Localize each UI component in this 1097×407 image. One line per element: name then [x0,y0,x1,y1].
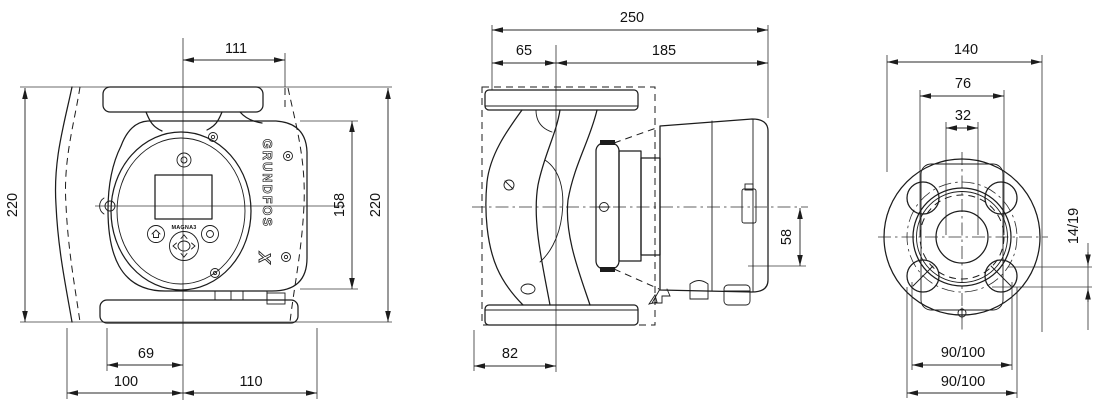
dpad-down-icon [181,254,187,258]
dim-69-label: 69 [138,346,154,362]
side-dimensions: 250 65 185 58 82 [474,10,800,366]
pump-bounding-outline [482,87,655,325]
side-bottom-flange [485,305,638,325]
dim-76-label: 76 [955,76,971,92]
ok-button [178,241,190,251]
dpad-ring [170,232,199,261]
dim-110-label: 110 [239,374,262,390]
front-dimensions: 111 220 158 220 69 100 110 [5,41,388,393]
side-top-flange [485,90,638,110]
bolt-hole [985,182,1017,214]
cable-gland-2 [690,281,708,300]
display-screen [155,175,212,219]
side-extension-lines [472,25,808,372]
dim-82-label: 82 [502,346,518,362]
model-label: MAGNA3 [171,225,196,231]
grundfos-x-logo: X [255,251,274,265]
dim-140-label: 140 [954,42,978,58]
dim-220-left-label: 220 [5,193,21,217]
dim-111-label: 111 [225,41,247,57]
side-view: 250 65 185 58 82 [472,10,808,372]
dim-100-label: 100 [114,374,138,390]
dim-90-100-upper-label: 90/100 [941,345,985,361]
dpad-left-icon [173,243,177,249]
front-view: MAGNA3 GRUNDFOS X 111 220 158 220 69 100… [5,38,392,400]
home-icon [152,230,160,238]
flange-view: 140 76 32 14/19 90/100 90/100 [878,42,1092,398]
dim-32-label: 32 [955,108,971,124]
base-foot [100,300,298,323]
connector-clip [742,189,756,223]
motor-ring-2 [641,158,660,255]
cable-gland [724,285,750,305]
menu-icon [207,231,214,238]
menu-button [202,226,219,243]
brand-logo: GRUNDFOS [260,139,274,228]
dpad-right-icon [192,243,196,249]
dim-14-19-label: 14/19 [1066,208,1082,244]
dim-250-label: 250 [620,10,644,26]
dim-90-100-lower-label: 90/100 [941,374,985,390]
motor-ring-1 [619,151,641,261]
home-button [148,226,165,243]
dim-58-label: 58 [779,229,795,245]
dim-220-right-label: 220 [368,193,384,217]
dpad-up-icon [181,235,187,239]
dim-185-label: 185 [652,43,676,59]
drawing-canvas: MAGNA3 GRUNDFOS X 111 220 158 220 69 100… [0,0,1097,407]
pump-front-body [100,87,307,323]
dimensional-drawing: MAGNA3 GRUNDFOS X 111 220 158 220 69 100… [0,0,1097,407]
dim-65-label: 65 [516,43,532,59]
faceplate-ring-outer [111,132,251,290]
dim-158-label: 158 [332,193,348,217]
pump-side-body [485,90,768,325]
